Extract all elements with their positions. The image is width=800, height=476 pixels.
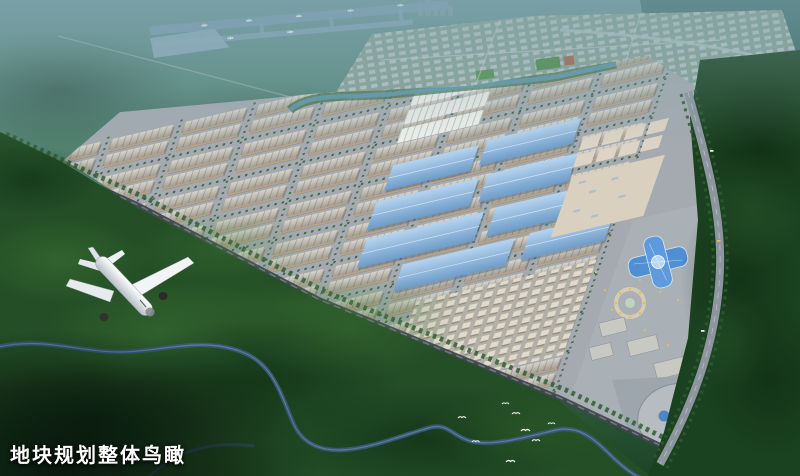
rendering-canvas: 地块规划整体鸟瞰 xyxy=(0,0,800,476)
atmospheric-haze xyxy=(0,0,800,150)
airplane-engine xyxy=(159,292,168,300)
airplane-nose xyxy=(146,308,155,317)
caption: 地块规划整体鸟瞰 xyxy=(10,439,186,468)
aerial-rendering xyxy=(0,0,800,476)
airplane-engine xyxy=(100,313,109,321)
